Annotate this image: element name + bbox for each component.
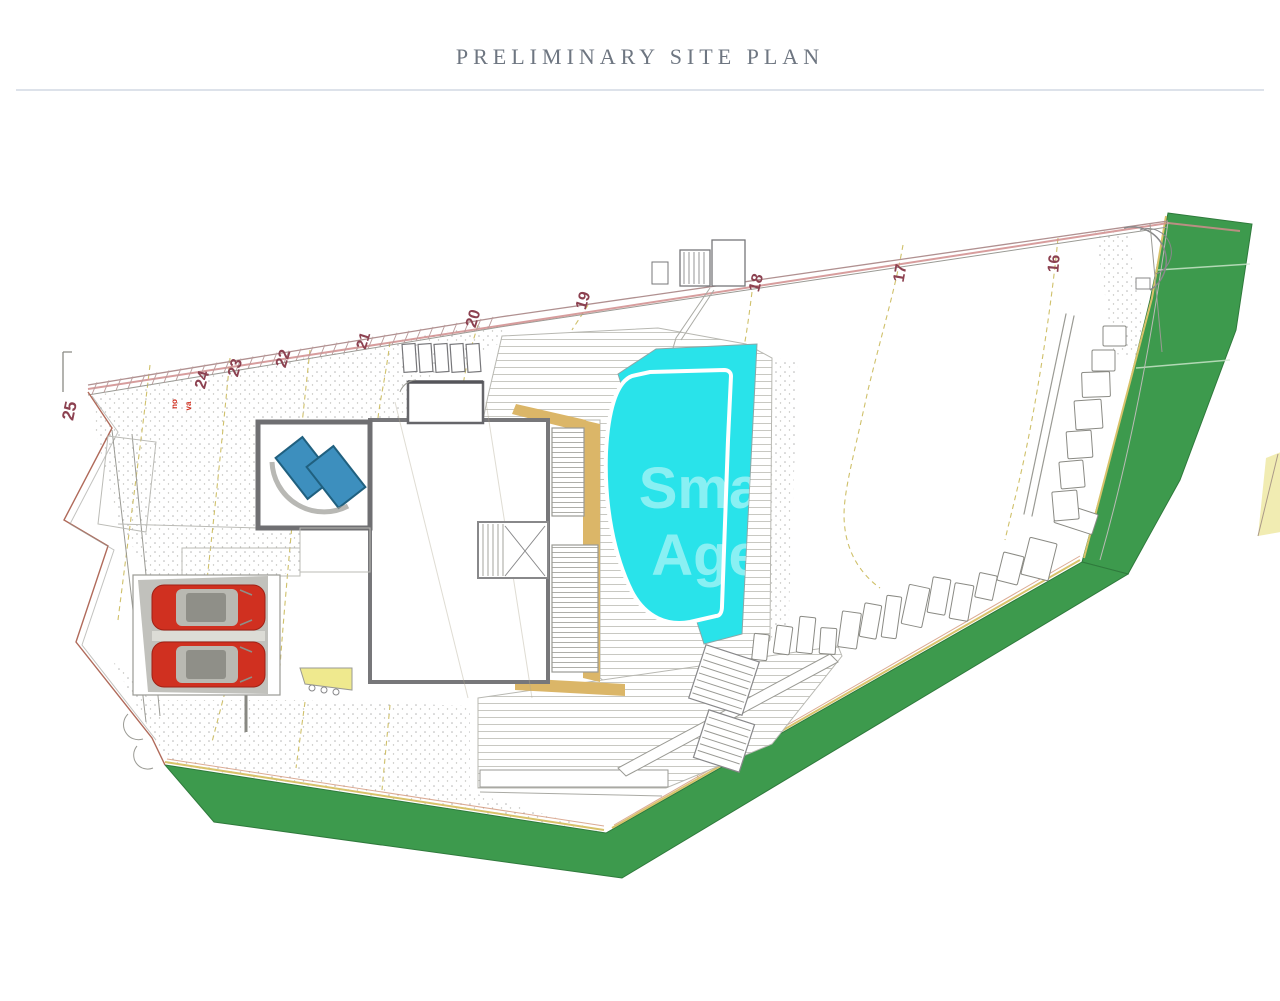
stepping-stones	[752, 326, 1126, 661]
road-platform	[712, 240, 745, 286]
planter	[434, 344, 449, 373]
car	[152, 642, 265, 687]
stepping-stone	[1066, 430, 1093, 459]
stepping-stone	[927, 577, 951, 616]
contour-label: 25	[58, 400, 81, 422]
stepping-stone	[975, 572, 998, 600]
contour-label: 16	[1045, 254, 1063, 273]
tiny-annotation: no	[170, 399, 179, 409]
gate-arc	[134, 746, 153, 769]
louvered-terrace	[552, 428, 584, 516]
louvered-terrace	[552, 545, 598, 672]
neighbor-parcel-patch	[1258, 452, 1280, 536]
stepping-stone	[796, 616, 816, 653]
upper-annex	[408, 382, 483, 423]
tiny-annotation: va	[184, 401, 193, 410]
planter	[418, 344, 433, 373]
stepping-stone	[838, 611, 862, 649]
stepping-stone	[1103, 326, 1126, 346]
stepping-stone	[1059, 460, 1085, 489]
stepping-stone	[1052, 490, 1079, 521]
stepping-stone	[881, 595, 902, 639]
yellow-wedge	[300, 668, 352, 690]
garage-aisle	[152, 631, 265, 641]
road-steps	[680, 250, 710, 286]
stepping-stone	[901, 584, 930, 627]
stepping-stone	[1021, 537, 1057, 581]
site-plan-page: PRELIMINARY SITE PLAN	[0, 0, 1280, 1001]
planter-row	[402, 344, 481, 373]
stepping-stone	[1092, 350, 1115, 371]
watermark-line2: Age	[651, 523, 761, 588]
stepping-stone	[859, 603, 882, 639]
watermark-line1: Sma	[639, 456, 762, 521]
stepping-stone	[949, 583, 974, 622]
planter	[450, 344, 465, 373]
contour-label: 18	[746, 272, 767, 294]
stepping-stone	[1082, 372, 1111, 398]
car	[152, 585, 265, 630]
stepping-stone	[997, 552, 1024, 585]
stepping-stone	[1074, 399, 1103, 430]
stepping-stone	[819, 627, 837, 654]
stairwell	[478, 522, 548, 578]
stepping-stone	[773, 625, 793, 655]
contour-label: 19	[573, 290, 594, 312]
gate-arc	[124, 714, 143, 740]
garage	[133, 575, 280, 695]
terrace-step	[480, 770, 668, 787]
planter	[466, 344, 481, 373]
site-plan-drawing: Sma Age 25242322212019181716 nova	[0, 0, 1280, 1001]
planter	[402, 344, 417, 373]
stepping-stone	[752, 633, 770, 660]
contour-label: 17	[891, 263, 911, 284]
